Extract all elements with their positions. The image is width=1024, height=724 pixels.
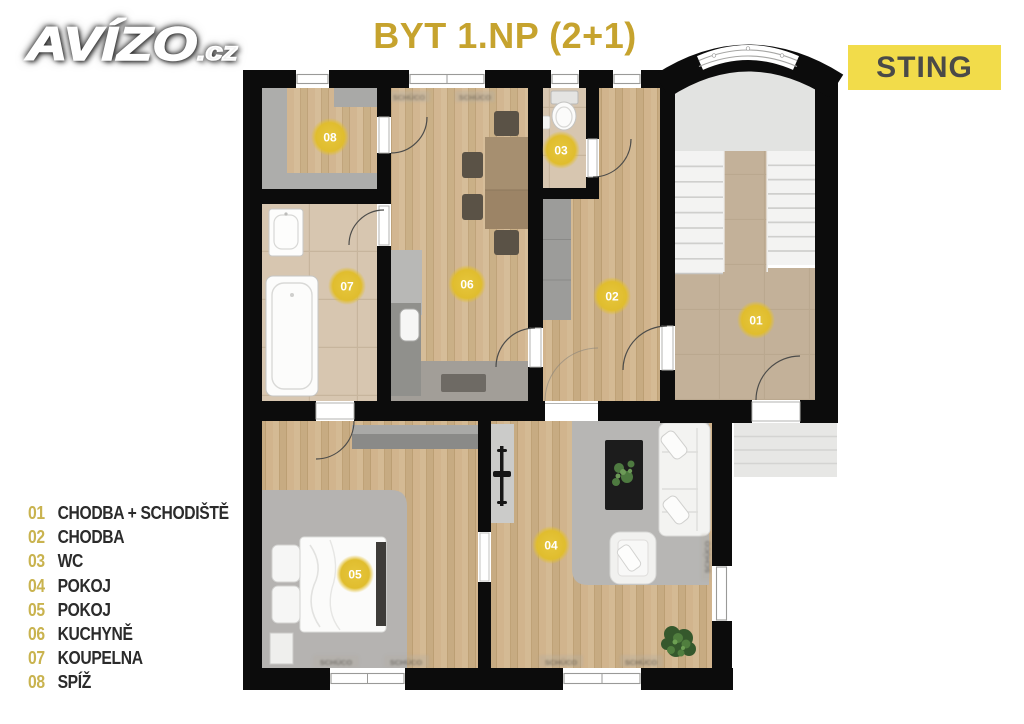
svg-text:SCHÜCO: SCHÜCO	[390, 658, 423, 667]
svg-text:04: 04	[544, 539, 558, 553]
svg-text:08: 08	[323, 131, 337, 145]
svg-text:01: 01	[749, 314, 763, 328]
svg-text:SCHÜCO: SCHÜCO	[320, 658, 353, 667]
svg-text:SCHÜCO: SCHÜCO	[545, 658, 578, 667]
svg-text:SCHÜCO: SCHÜCO	[703, 541, 712, 574]
svg-text:07: 07	[340, 280, 354, 294]
svg-text:05: 05	[348, 568, 362, 582]
svg-text:SCHÜCO: SCHÜCO	[459, 93, 492, 102]
svg-text:03: 03	[554, 144, 568, 158]
svg-text:06: 06	[460, 278, 474, 292]
svg-text:02: 02	[605, 290, 619, 304]
svg-text:SCHÜCO: SCHÜCO	[393, 93, 426, 102]
svg-text:SCHÜCO: SCHÜCO	[625, 658, 658, 667]
